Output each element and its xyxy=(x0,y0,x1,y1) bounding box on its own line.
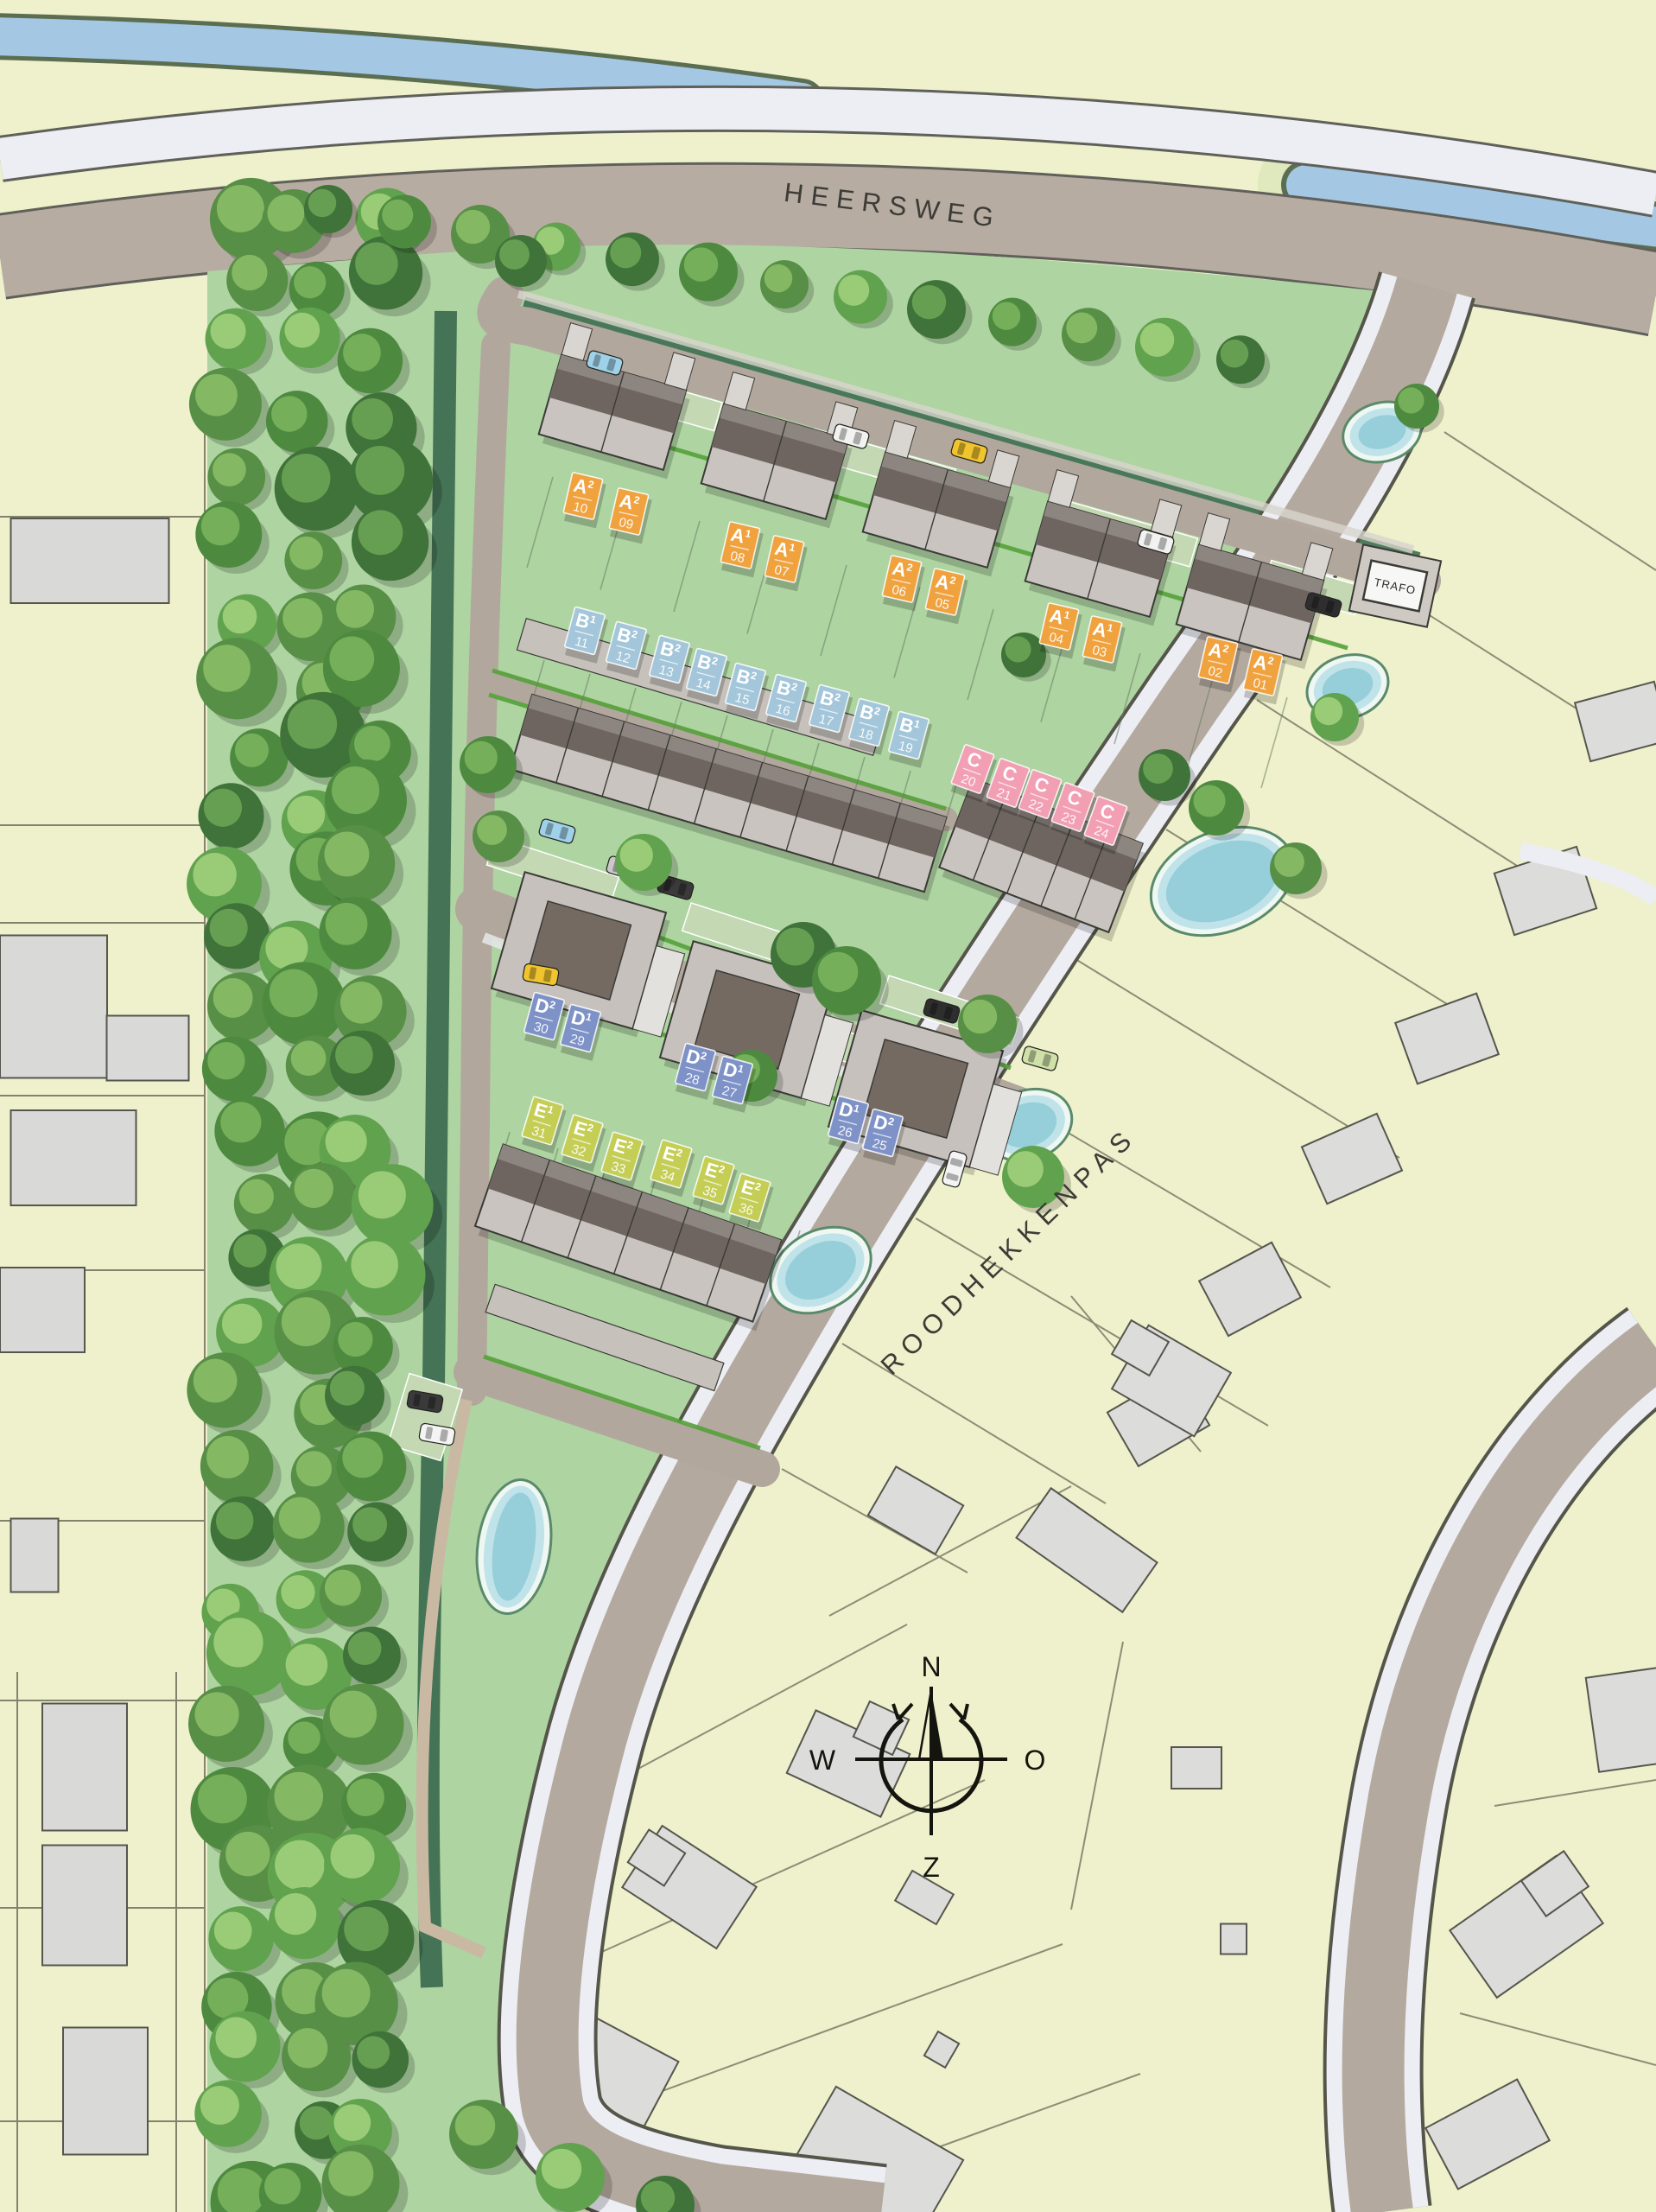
left-building xyxy=(63,2028,148,2155)
site-plan-canvas: TRAFO A210A209A108A107A206A205A104A103A2… xyxy=(0,0,1656,2212)
left-building xyxy=(11,1519,59,1592)
left-building xyxy=(11,1110,136,1205)
left-building xyxy=(42,1846,127,1966)
existing-house xyxy=(1586,1667,1656,1771)
compass-west: W xyxy=(809,1745,836,1776)
compass-north: N xyxy=(921,1651,941,1682)
existing-house xyxy=(1221,1924,1247,1955)
existing-house xyxy=(1171,1747,1221,1789)
site-plan: TRAFO A210A209A108A107A206A205A104A103A2… xyxy=(0,0,1656,2212)
left-building xyxy=(0,936,107,1078)
left-building xyxy=(107,1016,189,1081)
left-building xyxy=(42,1704,127,1831)
left-building xyxy=(0,1268,85,1352)
left-building xyxy=(11,518,169,603)
compass-south: Z xyxy=(923,1852,940,1883)
compass-east: O xyxy=(1025,1745,1046,1776)
